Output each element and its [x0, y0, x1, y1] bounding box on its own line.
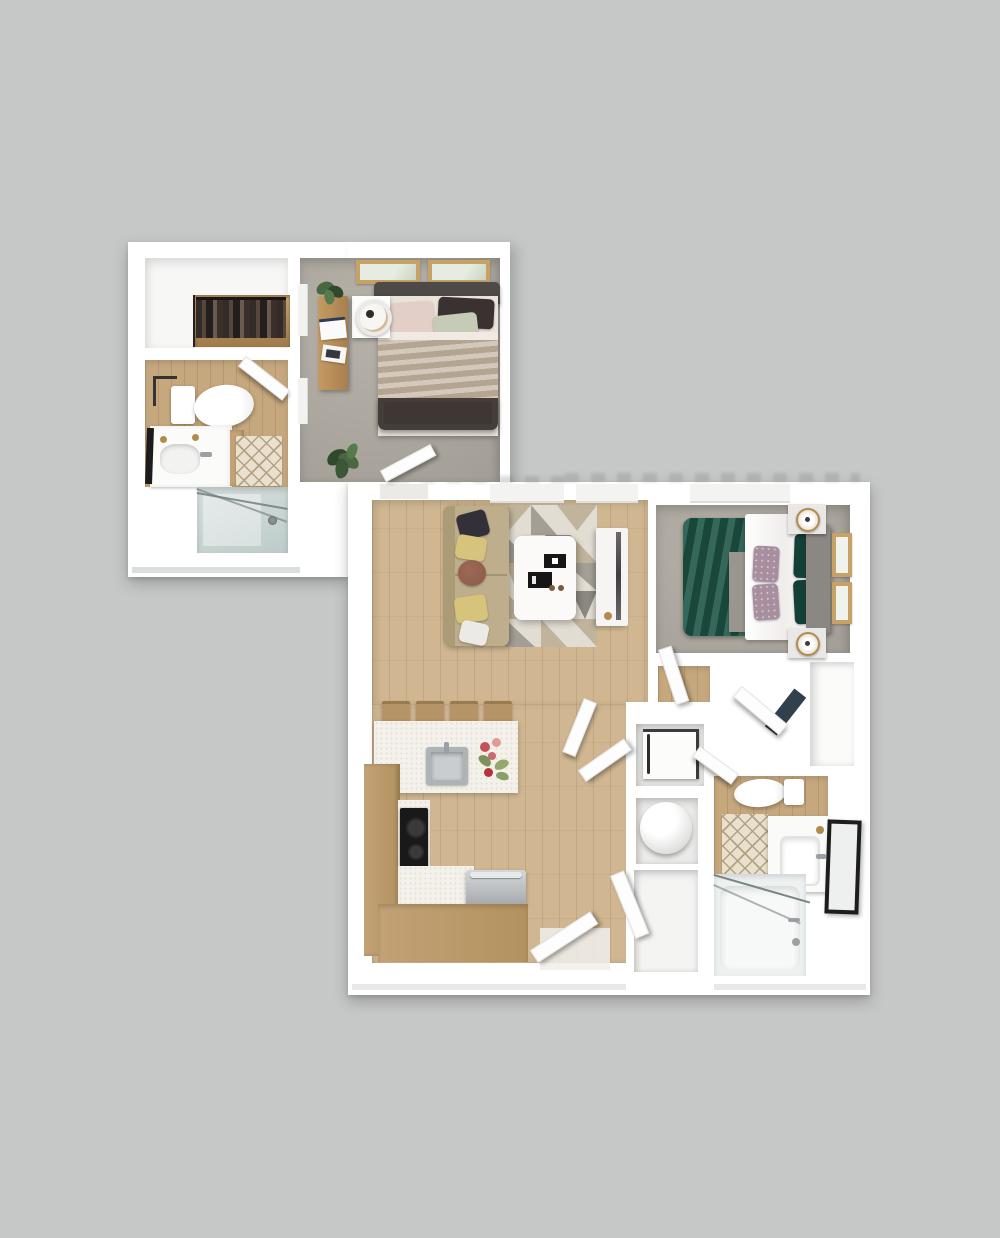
plumbing-pipe [153, 376, 177, 379]
sofa-back [443, 506, 455, 646]
vanity2-faucet [816, 854, 826, 859]
washer [643, 729, 699, 779]
shower-drain [268, 516, 277, 525]
wall-edge-strip [132, 567, 300, 573]
toilet2-tank [784, 779, 804, 805]
window-sill [690, 484, 790, 503]
wall-art-frame [356, 260, 420, 284]
gold-lamp [796, 508, 820, 532]
bathtub-basin [720, 886, 800, 970]
hanging-clothes [196, 297, 286, 338]
flower [492, 738, 501, 747]
bed2-pillow-floral [752, 545, 780, 582]
gold-lamp [796, 632, 820, 656]
soap-decor [160, 436, 167, 443]
oven-handle [470, 872, 522, 878]
cooktop-burner [408, 844, 424, 860]
tub-faucet [788, 918, 800, 922]
desk-papers [319, 317, 347, 341]
vanity1-faucet [200, 452, 212, 457]
floor-plan-canvas [0, 0, 1000, 1238]
bedroom1-door-threshold [380, 484, 428, 499]
table-lamp1-finial [366, 310, 374, 318]
render-smudge [565, 473, 860, 482]
tub-faucet-handle [792, 938, 800, 946]
leaning-mirror2 [824, 819, 861, 914]
vanity2-decor-gold [816, 826, 824, 834]
kitchen-faucet [444, 742, 449, 754]
bed1-blanket [378, 340, 498, 400]
window-sill [490, 484, 564, 503]
bedroom1-window-sill [298, 284, 308, 336]
bed1-sheet-edge [378, 332, 498, 340]
washer-handle [647, 734, 650, 774]
plumbing-pipe [153, 376, 156, 406]
vanity1-sink [160, 444, 200, 474]
desk1 [318, 296, 348, 390]
coffee-table-decor-dot [549, 585, 555, 591]
cooktop-burner [406, 818, 426, 838]
wall-art-frame [428, 260, 490, 284]
toilet-tank [171, 386, 195, 424]
tv-screen [616, 532, 621, 620]
console-decor-gold [604, 612, 612, 620]
bedroom2-closet-recess [810, 662, 854, 766]
bed2-headboard [806, 524, 830, 634]
sofa-pillow-yellow2 [453, 594, 488, 624]
washer-top-edge [643, 729, 699, 732]
kitchen-cabinet-bottom [378, 904, 528, 962]
flower [484, 768, 493, 777]
soap-decor [192, 434, 199, 441]
wall-edge-strip [352, 984, 866, 990]
sofa-pillow-yellow [454, 534, 488, 563]
kitchen-sink-basin [431, 752, 463, 780]
coffee-table-decor-dot [558, 585, 564, 591]
water-heater [640, 802, 692, 854]
bath-mat-2 [722, 814, 768, 874]
wall-art-frame [832, 533, 852, 577]
coffee-table-tray-dot [552, 558, 558, 564]
coffee-table-tray2-mark [532, 576, 536, 584]
bed2-pillow-floral [752, 583, 780, 621]
window-sill [576, 484, 638, 503]
bed1-footboard-inner [384, 402, 492, 424]
bedroom1-window-sill [298, 378, 308, 424]
tv-console [596, 528, 628, 626]
flower [480, 742, 490, 752]
sofa-pillow-brown [458, 560, 486, 586]
table-lamp1 [356, 300, 392, 336]
wall-art-frame [832, 582, 852, 624]
bath-mat-1 [236, 436, 282, 486]
